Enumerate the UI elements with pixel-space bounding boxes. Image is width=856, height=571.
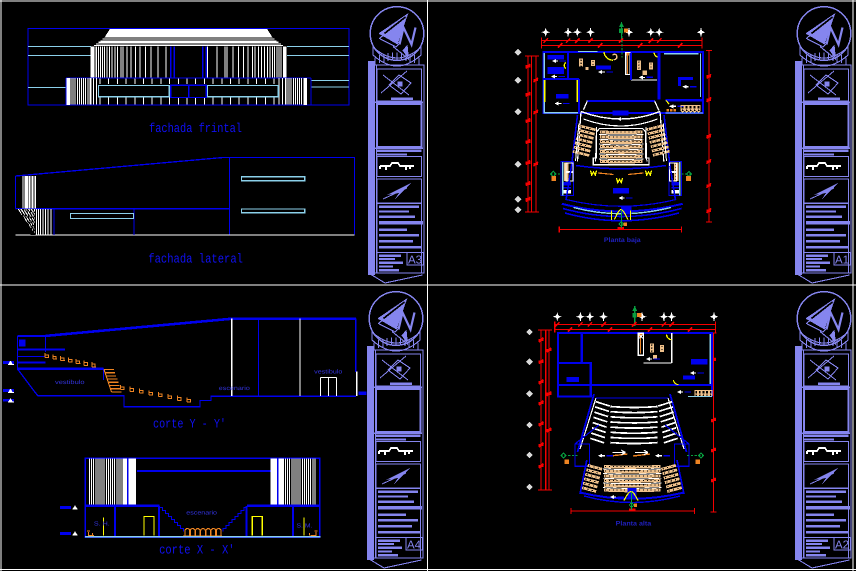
svg-text:A1: A1 — [835, 255, 849, 267]
svg-text:A3: A3 — [408, 255, 422, 267]
svg-text:corte Y - Y': corte Y - Y' — [153, 417, 226, 432]
svg-text:Planta baja: Planta baja — [604, 237, 641, 244]
svg-text:vestibulo: vestibulo — [55, 379, 85, 386]
svg-text:escenario: escenario — [186, 510, 217, 517]
svg-text:fachada lateral: fachada lateral — [148, 252, 243, 267]
svg-text:corte X - X': corte X - X' — [159, 543, 235, 558]
svg-text:A2: A2 — [835, 540, 849, 552]
svg-text:Planta alta: Planta alta — [616, 520, 652, 527]
svg-text:escenario: escenario — [219, 385, 251, 392]
svg-text:fachada frintal: fachada frintal — [149, 121, 242, 136]
svg-text:A4: A4 — [407, 540, 422, 552]
svg-text:S. M.: S. M. — [297, 522, 313, 529]
svg-text:S. H.: S. H. — [94, 520, 110, 527]
svg-text:vestibulo: vestibulo — [314, 368, 343, 375]
